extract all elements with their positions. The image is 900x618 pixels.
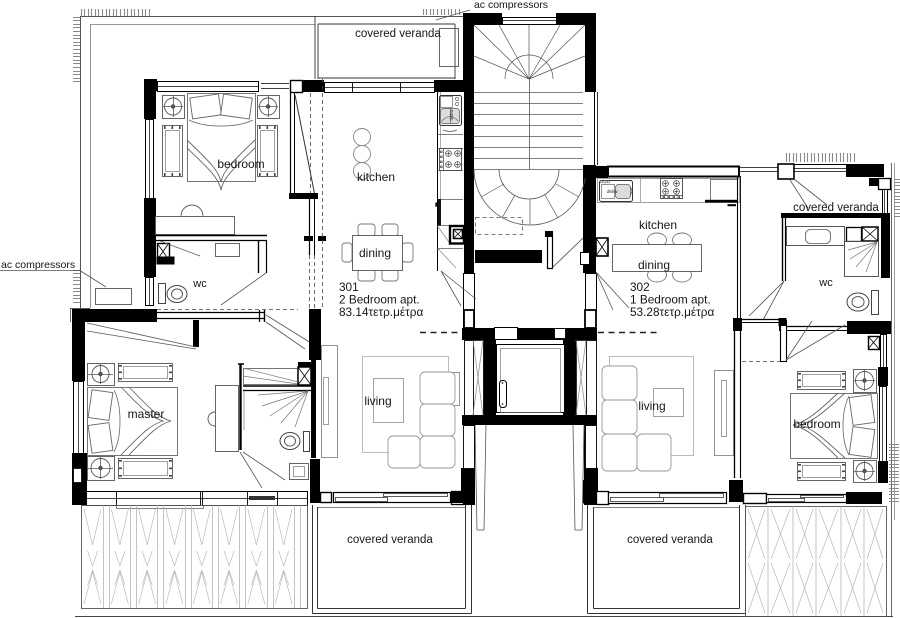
svg-text:bedroom: bedroom [217,157,264,171]
svg-text:53.28τετρ.μέτρα: 53.28τετρ.μέτρα [630,305,715,319]
svg-text:covered veranda: covered veranda [793,202,879,214]
svg-text:wc: wc [818,277,833,289]
svg-text:master: master [128,407,165,421]
svg-text:dining: dining [638,258,670,272]
svg-text:covered veranda: covered veranda [627,534,713,546]
svg-text:dishw: dishw [607,189,619,194]
svg-text:living: living [638,399,665,413]
svg-text:covered veranda: covered veranda [355,28,441,40]
svg-text:kitchen: kitchen [639,218,677,232]
svg-text:wc: wc [192,278,207,290]
svg-text:bedroom: bedroom [793,417,840,431]
svg-text:living: living [364,394,391,408]
svg-text:dishw: dishw [449,109,454,121]
svg-text:covered veranda: covered veranda [347,534,433,546]
svg-text:dining: dining [359,246,391,260]
svg-text:ac compressors: ac compressors [1,259,75,271]
svg-text:83.14τετρ.μέτρα: 83.14τετρ.μέτρα [339,305,424,319]
svg-text:kitchen: kitchen [357,170,395,184]
svg-text:ac compressors: ac compressors [474,0,548,11]
